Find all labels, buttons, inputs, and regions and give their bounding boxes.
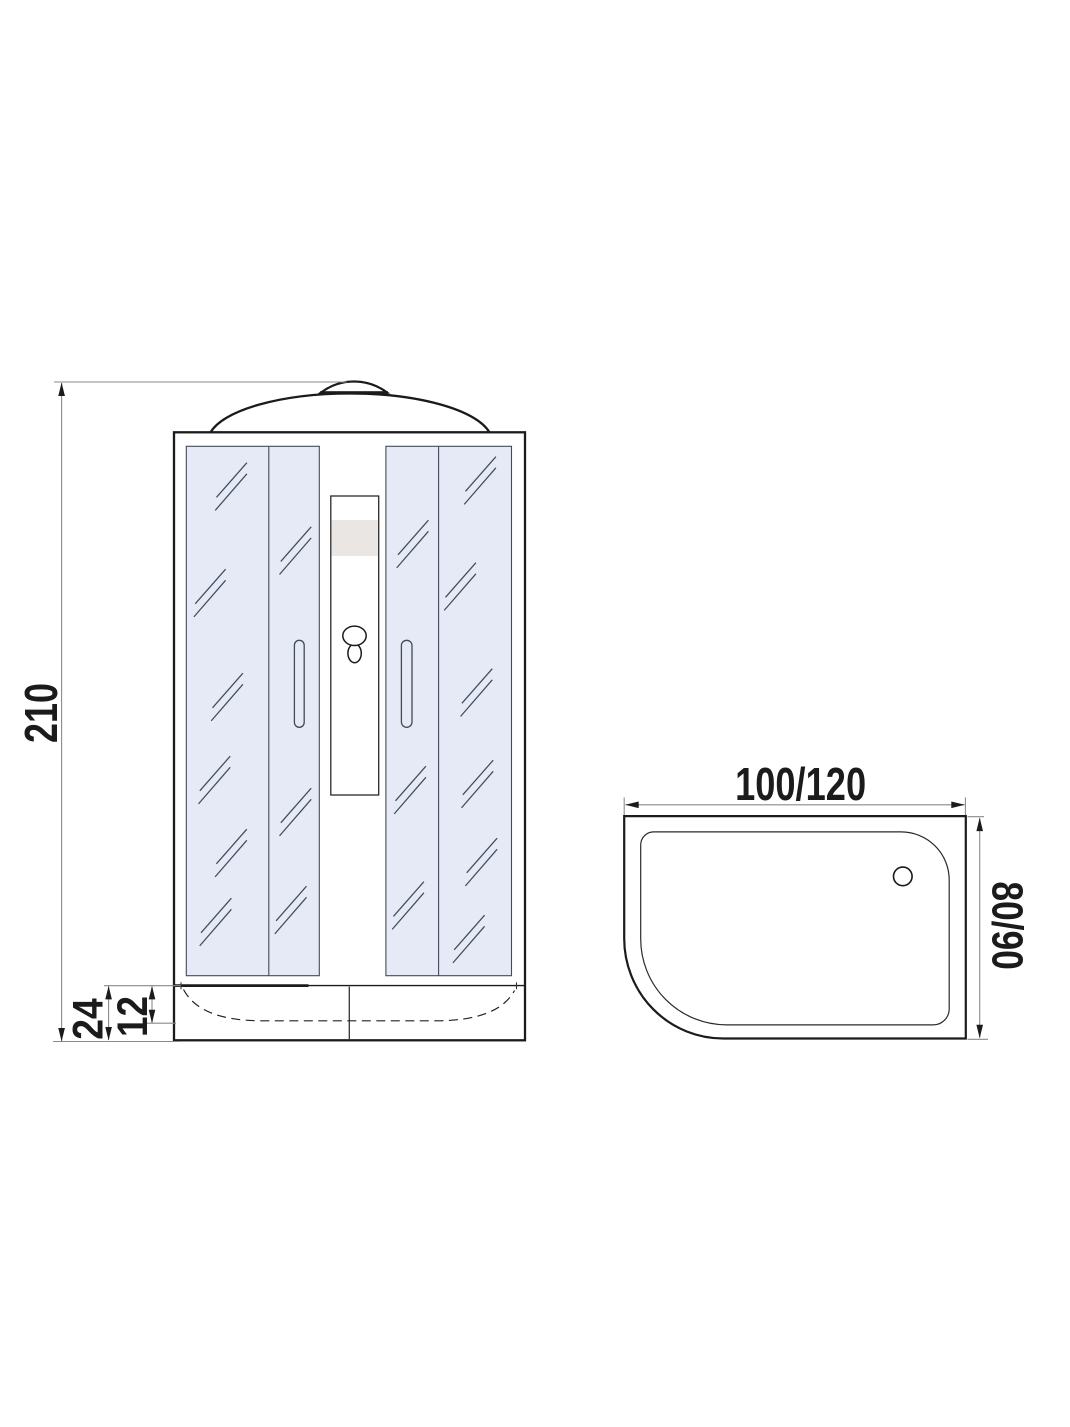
svg-text:210: 210 xyxy=(15,683,67,743)
svg-text:100/120: 100/120 xyxy=(735,758,866,810)
svg-text:24: 24 xyxy=(65,998,113,1040)
svg-text:12: 12 xyxy=(109,996,157,1037)
svg-text:80/90: 80/90 xyxy=(982,881,1031,970)
